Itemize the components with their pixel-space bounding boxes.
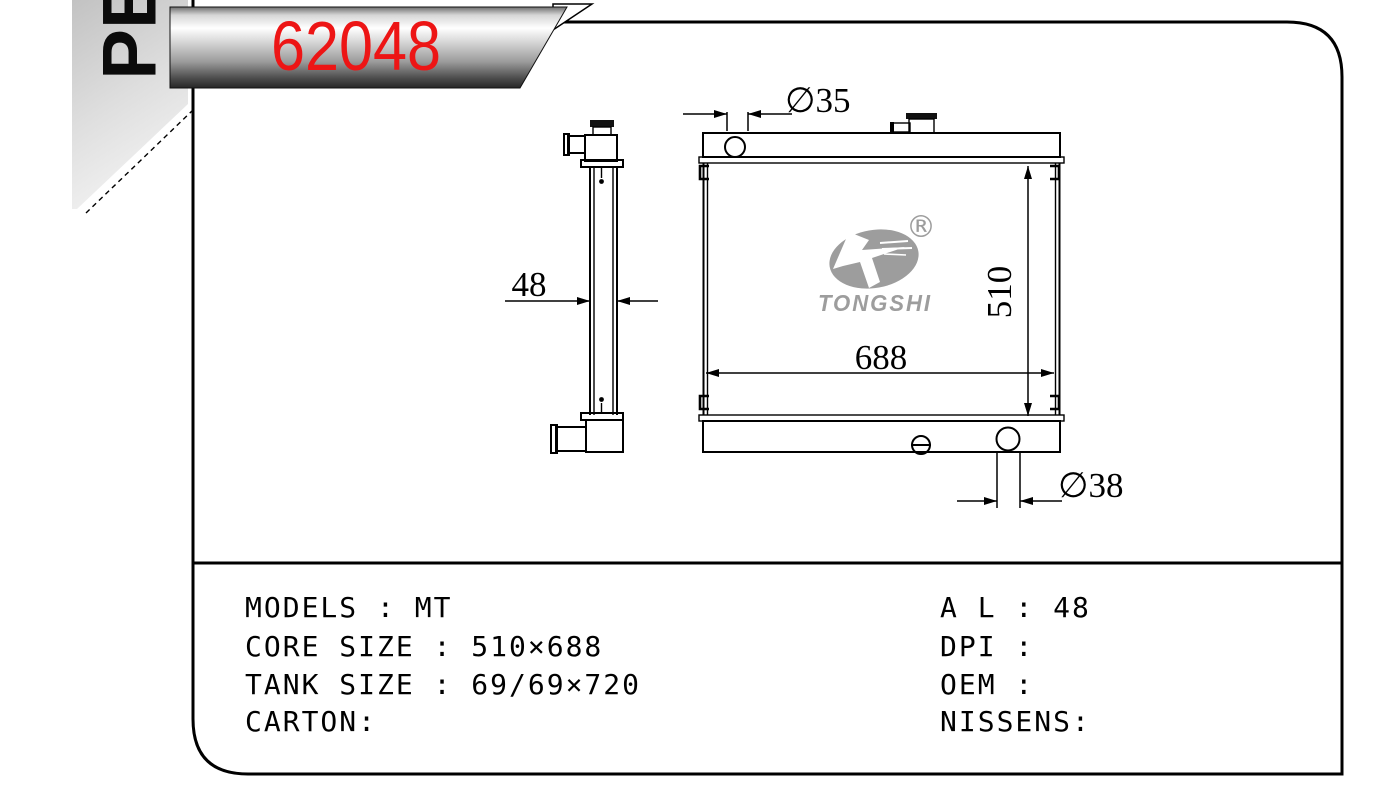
height-dim-label: 510	[980, 266, 1019, 319]
inlet-arrow-right	[748, 110, 761, 118]
front-filler-cap	[890, 113, 937, 133]
side-outlet-pipe	[556, 427, 586, 451]
brand-logo: ® TONGSHI	[818, 210, 936, 316]
side-cap-ridge	[590, 120, 614, 127]
depth-dim-label: 48	[512, 265, 547, 304]
logo-streak-3	[884, 254, 906, 255]
spec-tank-size: TANK SIZE : 69/69×720	[245, 668, 641, 701]
spec-al: A L : 48	[940, 591, 1091, 624]
side-top-tank	[585, 135, 617, 161]
clip-top-right	[1050, 166, 1059, 179]
cap-lever-end	[890, 122, 894, 133]
clip-bottom-right	[1050, 396, 1059, 409]
cap-top-bar	[906, 113, 937, 119]
dimension-inlet: ∅35	[683, 81, 851, 131]
dimension-width: 688	[706, 338, 1054, 377]
dimension-depth: 48	[505, 265, 658, 305]
registered-mark-icon: ®	[906, 210, 936, 245]
spec-models: MODELS : MT	[245, 591, 452, 624]
side-bottom-tank	[586, 420, 623, 452]
height-arrow-bottom	[1024, 403, 1032, 416]
spec-dpi: DPI :	[940, 630, 1034, 663]
brand-name: TONGSHI	[818, 290, 932, 316]
side-top-pin-dot	[599, 179, 604, 184]
cap-lever-arm	[893, 123, 910, 132]
front-top-tank	[703, 133, 1060, 157]
spec-core-size: CORE SIZE : 510×688	[245, 630, 603, 663]
cap-body	[909, 119, 934, 133]
spec-carton: CARTON:	[245, 705, 377, 738]
inlet-arrow-left	[714, 110, 727, 118]
side-inlet-pipe-end	[564, 134, 569, 155]
side-bottom-pin-dot	[599, 397, 604, 402]
part-number-banner: 62048	[170, 4, 592, 88]
height-arrow-top	[1024, 166, 1032, 179]
dimension-height: 510	[980, 166, 1032, 416]
width-dim-label: 688	[855, 338, 908, 377]
logo-streak-2	[882, 248, 912, 249]
ribbon-label: PE	[88, 0, 173, 80]
part-number: 62048	[271, 7, 441, 85]
outlet-arrow-right	[1020, 497, 1033, 505]
radiator-drawing-sheet: { "part": { "number": "62048", "ribbon":…	[0, 0, 1399, 792]
width-arrow-right	[1041, 369, 1054, 377]
inlet-dim-label: ∅35	[785, 81, 851, 120]
front-outlet-hole	[997, 428, 1020, 451]
spec-nissens: NISSENS:	[940, 705, 1091, 738]
side-inlet-pipe	[568, 136, 585, 153]
depth-arrow-left	[577, 297, 590, 305]
front-bottom-tank	[703, 421, 1060, 452]
side-cap-neck	[593, 127, 611, 135]
side-outlet-pipe-end	[551, 425, 557, 453]
spec-oem: OEM :	[940, 668, 1034, 701]
radiator-side-view	[551, 120, 623, 453]
front-inlet-hole	[725, 137, 745, 157]
depth-arrow-right	[617, 297, 630, 305]
technical-drawing-canvas: PE 62048	[0, 0, 1399, 792]
outlet-arrow-left	[984, 497, 997, 505]
title-block: MODELS : MT CORE SIZE : 510×688 TANK SIZ…	[245, 591, 1091, 738]
outlet-dim-label: ∅38	[1058, 466, 1124, 505]
dimension-outlet: ∅38	[957, 453, 1124, 508]
